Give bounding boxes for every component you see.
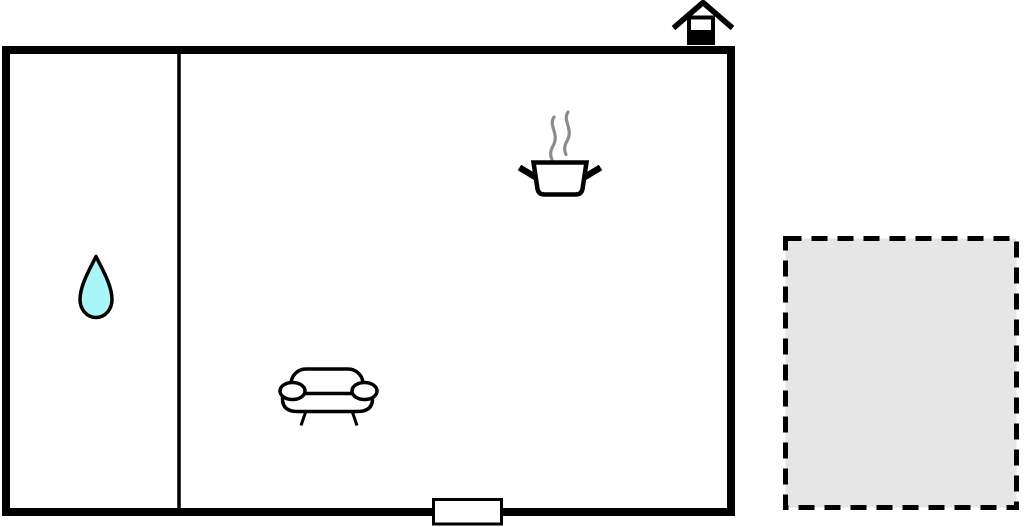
sofa-armrest-left	[280, 383, 305, 400]
terrace-dashed-rect	[786, 239, 1017, 508]
terrace-area	[786, 239, 1017, 508]
door-rect	[434, 500, 502, 525]
floor-plan-page	[0, 0, 1024, 527]
floor-plan-drawing	[0, 0, 1024, 527]
building	[6, 50, 731, 512]
pot-body	[534, 163, 587, 195]
building-outline	[6, 50, 731, 512]
sofa-armrest-right	[352, 383, 377, 400]
house-body-fill	[688, 30, 715, 45]
house-icon	[674, 3, 733, 46]
door-opening	[434, 500, 502, 525]
